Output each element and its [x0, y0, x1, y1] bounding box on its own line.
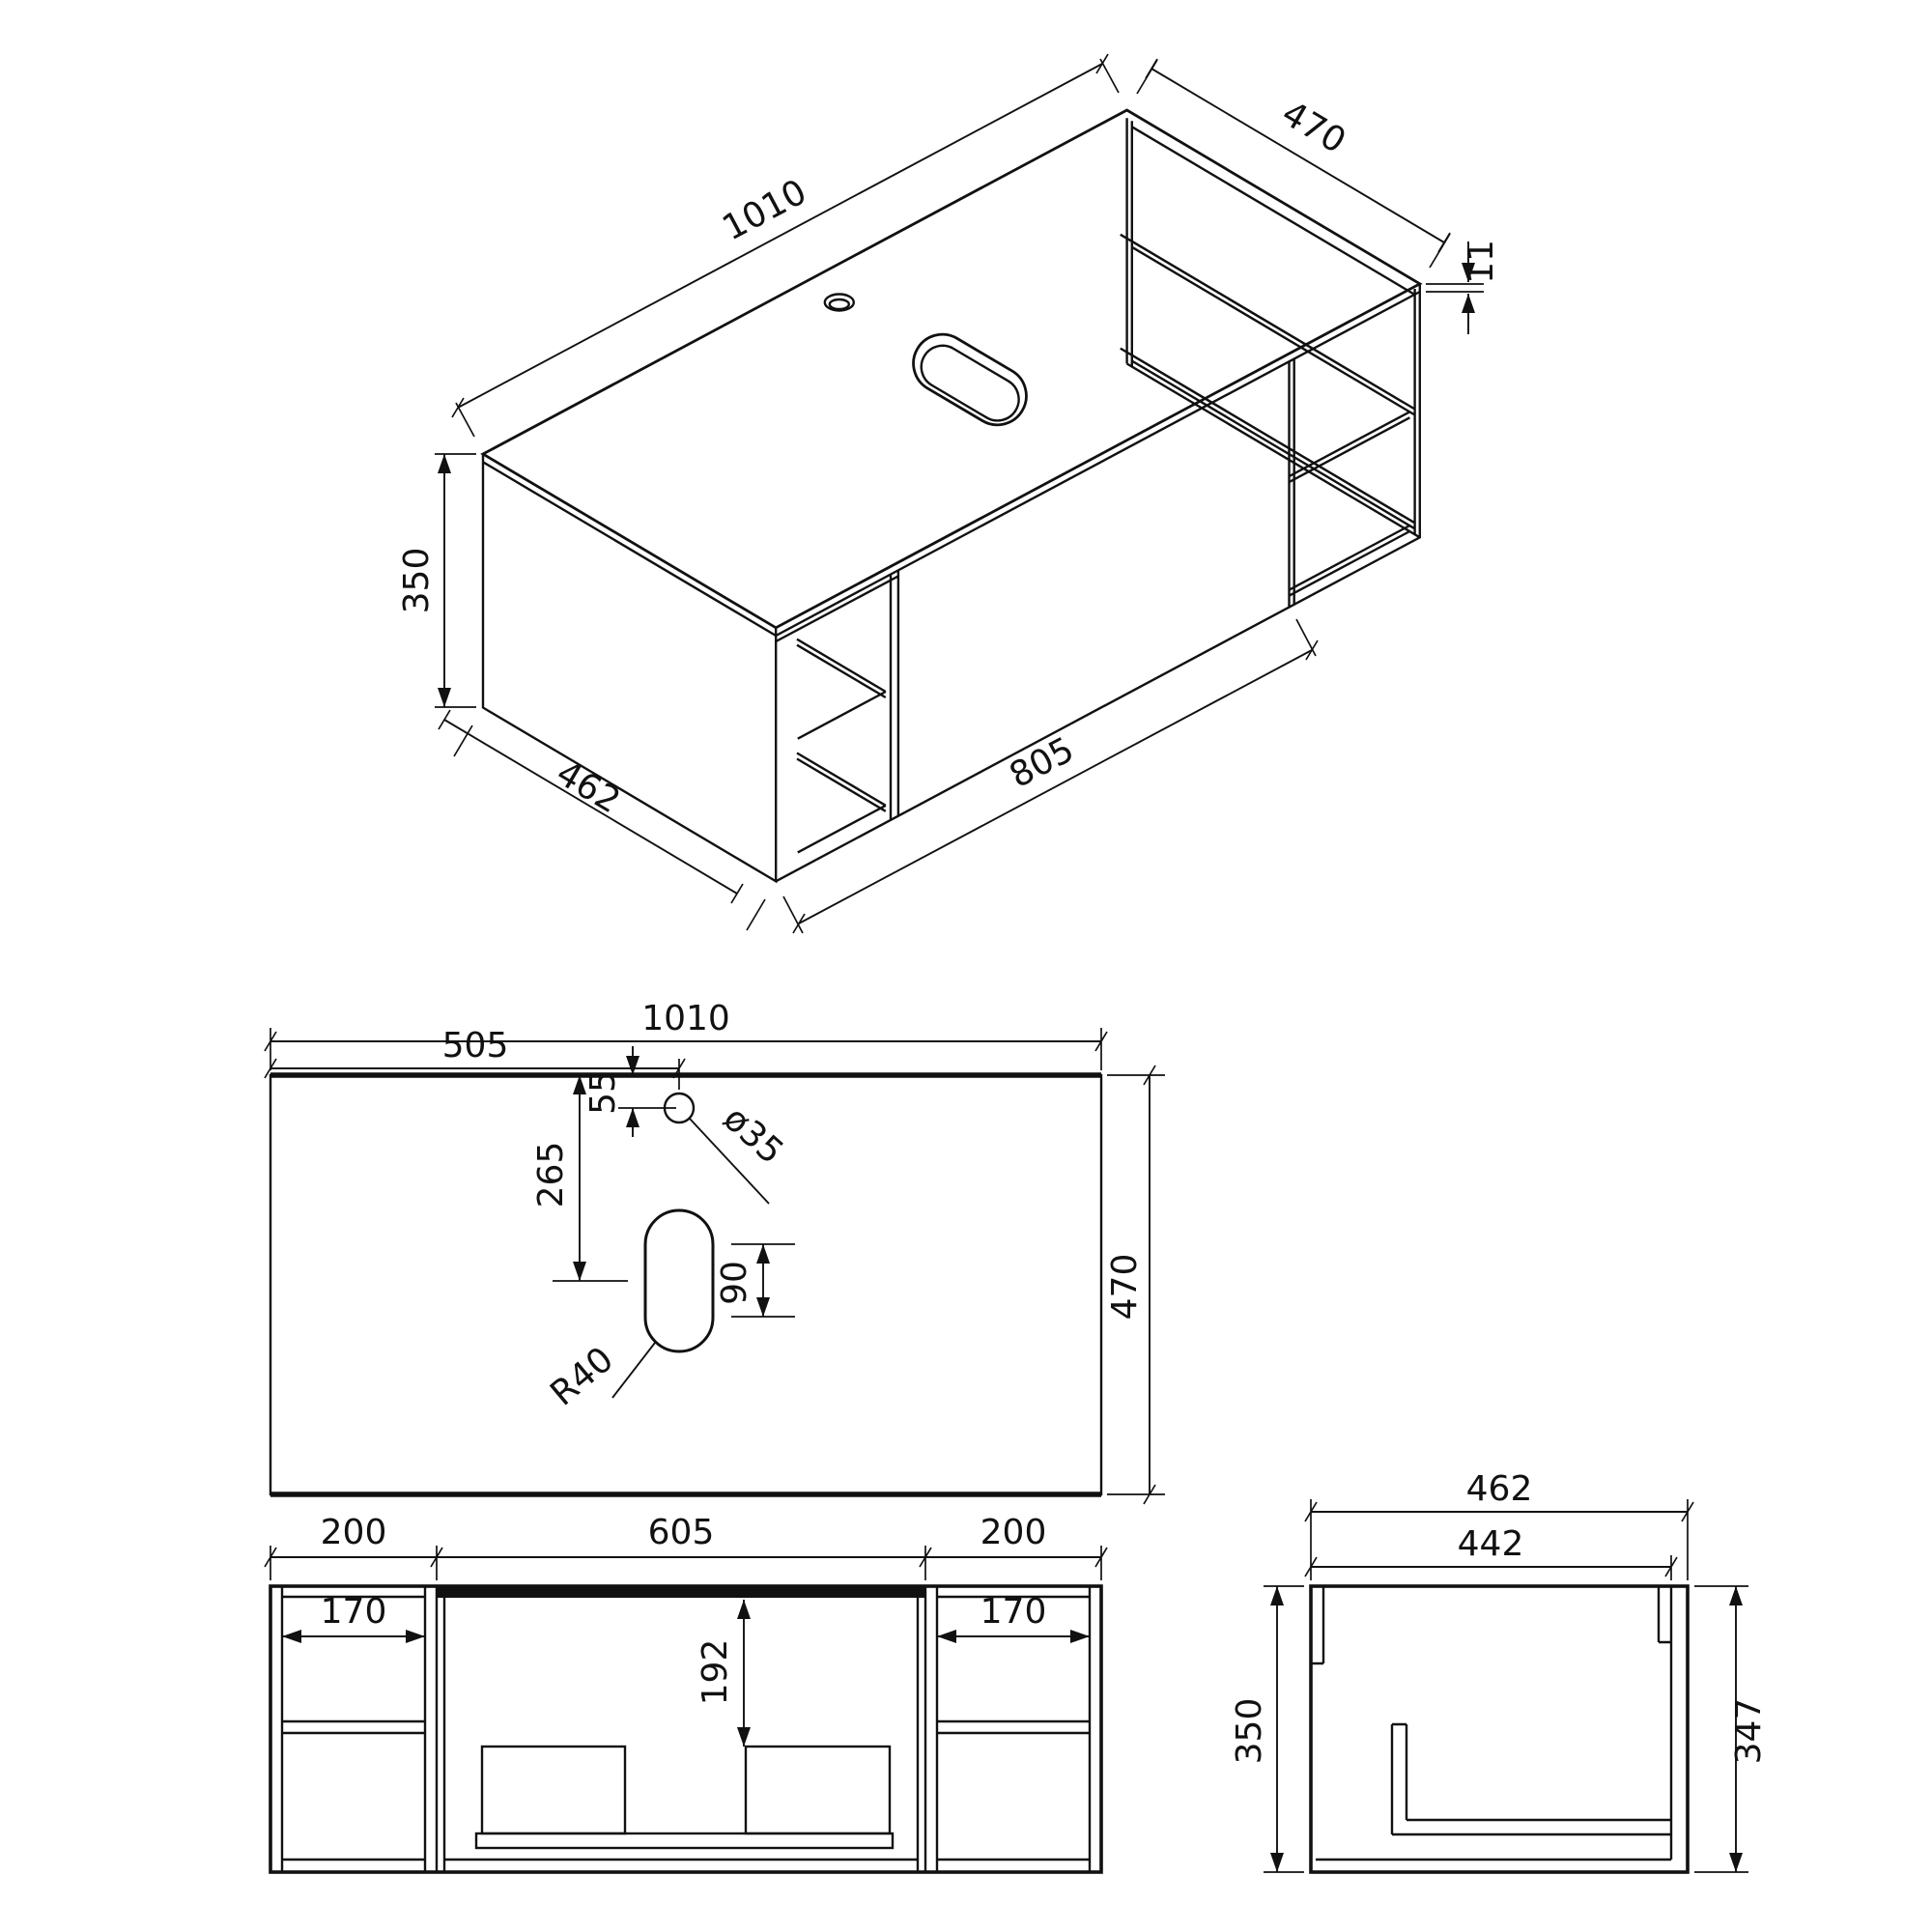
dim-label: 442 — [1458, 1524, 1524, 1564]
dim-label: 90 — [715, 1261, 754, 1305]
technical-drawing-canvas: 1010 470 11 350 462 805 — [0, 0, 1932, 1932]
drawing-page: 1010 470 11 350 462 805 — [0, 0, 1932, 1932]
dim-label: 605 — [648, 1513, 715, 1552]
dim-label: 350 — [397, 548, 437, 614]
dim-label: 170 — [321, 1592, 387, 1632]
dim-label: 192 — [696, 1639, 735, 1706]
dim-label: 55 — [583, 1070, 623, 1115]
dim-label: 1010 — [641, 999, 730, 1038]
dim-label: 470 — [1105, 1254, 1145, 1321]
dim-label: 200 — [321, 1513, 387, 1552]
dim-label: 350 — [1230, 1698, 1269, 1765]
dim-label: 347 — [1729, 1698, 1769, 1765]
dim-label: 200 — [980, 1513, 1047, 1552]
dim-label: 170 — [980, 1592, 1047, 1632]
dim-label: 505 — [442, 1026, 509, 1065]
dim-label: 462 — [1466, 1469, 1533, 1509]
countertop-edge-band — [437, 1586, 925, 1598]
dim-label: 11 — [1462, 240, 1501, 284]
dim-label: 265 — [531, 1142, 571, 1208]
